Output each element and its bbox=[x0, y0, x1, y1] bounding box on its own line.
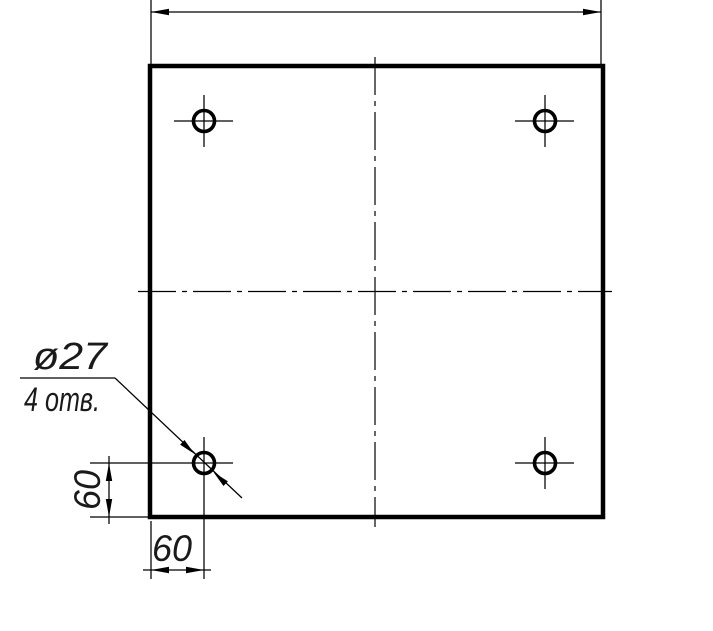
dimension-top-arrow-right bbox=[583, 9, 601, 15]
dimension-top-overall bbox=[151, 0, 601, 64]
hole-bottom-right bbox=[515, 437, 574, 489]
hole-top-left bbox=[174, 95, 233, 147]
dimension-top-arrow-left bbox=[151, 9, 169, 15]
hole-count-label: 4 отв. bbox=[24, 381, 100, 419]
dim-60-left-label: 60 bbox=[67, 470, 108, 510]
plate-drawing: 60 60 ø27 4 отв. bbox=[0, 0, 713, 631]
hole-top-right bbox=[515, 95, 574, 147]
callout-arrow-lower bbox=[213, 472, 228, 486]
dim-60-bottom-label: 60 bbox=[152, 528, 192, 569]
dimension-bottom-60: 60 bbox=[143, 521, 211, 579]
drawing-canvas: 60 60 ø27 4 отв. bbox=[0, 0, 713, 631]
dimension-left-60: 60 bbox=[67, 456, 152, 524]
hole-diameter-label: ø27 bbox=[33, 336, 109, 378]
